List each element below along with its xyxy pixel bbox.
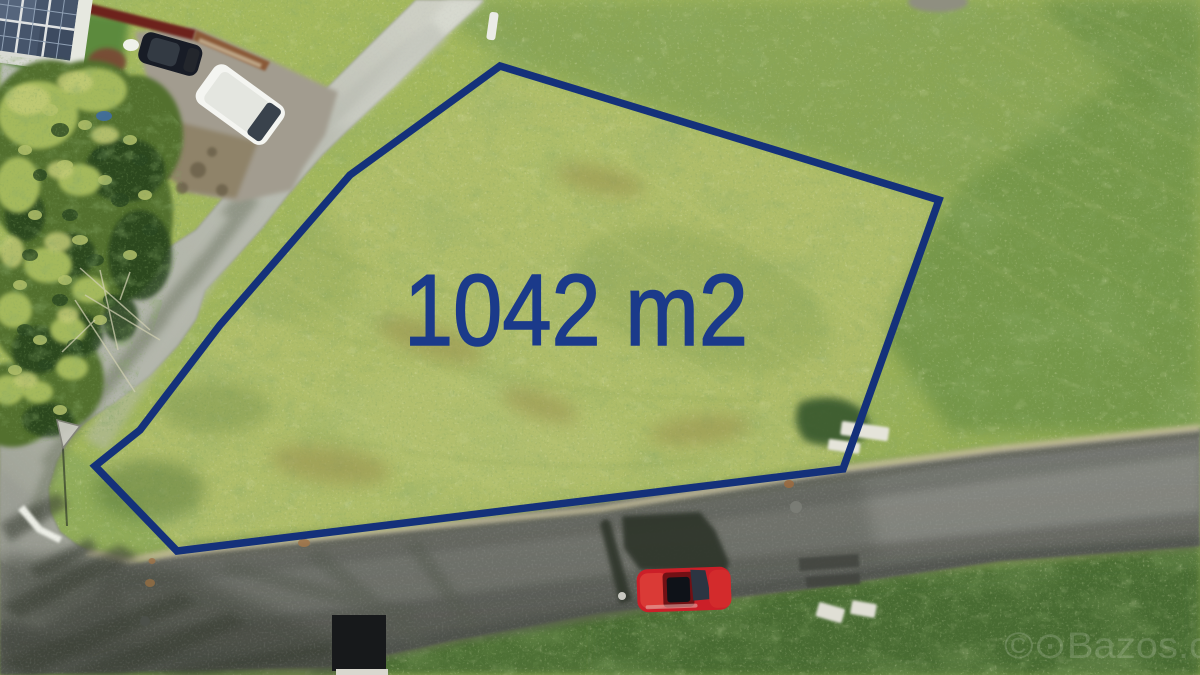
svg-text:1042 m2: 1042 m2	[404, 255, 748, 367]
svg-text:©⊙Bazos.cz: ©⊙Bazos.cz	[1004, 625, 1200, 666]
